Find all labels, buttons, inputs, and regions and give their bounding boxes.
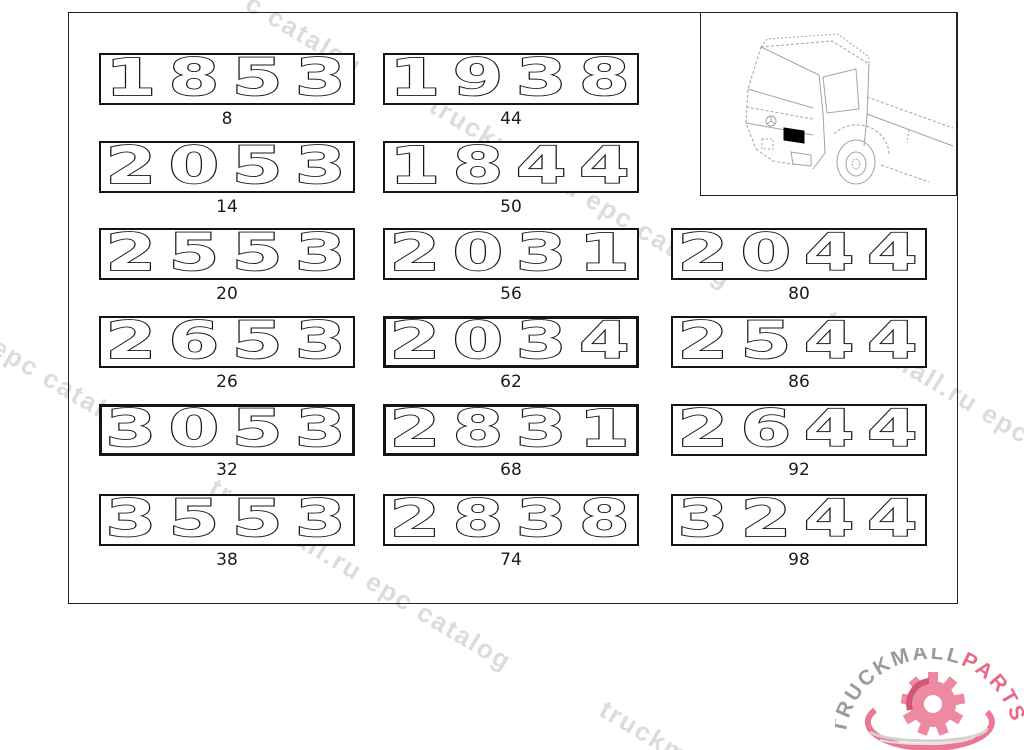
badge-2644[interactable]: 2644 — [671, 404, 927, 456]
badge-1938[interactable]: 1938 — [383, 53, 639, 105]
ref-number-32: 32 — [99, 460, 355, 480]
badge-digits-2831: 2831 — [389, 406, 639, 454]
badge-1853[interactable]: 1853 — [99, 53, 355, 105]
badge-digits-2553: 2553 — [105, 230, 355, 278]
badge-digits-3553: 3553 — [105, 496, 355, 544]
ref-number-86: 86 — [671, 372, 927, 392]
badge-2838[interactable]: 2838 — [383, 494, 639, 546]
truck-cab-sketch-icon — [701, 13, 955, 194]
watermark-text-5: truckmall — [594, 694, 724, 750]
badge-digits-2053: 2053 — [105, 143, 355, 191]
ref-number-92: 92 — [671, 460, 927, 480]
ref-number-38: 38 — [99, 550, 355, 570]
parts-diagram-page: c catalogtruckmall.ru epc catalogtruckma… — [0, 0, 1024, 750]
badge-digits-1938: 1938 — [389, 55, 639, 103]
badge-2831[interactable]: 2831 — [383, 404, 639, 456]
badge-digits-2034: 2034 — [389, 318, 639, 366]
badge-2044[interactable]: 2044 — [671, 228, 927, 280]
badge-2553[interactable]: 2553 — [99, 228, 355, 280]
truck-thumbnail-box — [700, 12, 957, 196]
badge-digits-2031: 2031 — [389, 230, 639, 278]
ref-number-62: 62 — [383, 372, 639, 392]
badge-digits-3244: 3244 — [677, 496, 927, 544]
ref-number-26: 26 — [99, 372, 355, 392]
badge-digits-2044: 2044 — [677, 230, 927, 278]
badge-digits-3053: 3053 — [105, 406, 355, 454]
truckmall-parts-logo[interactable]: TRUCKMALLPARTS — [835, 648, 1024, 750]
ref-number-98: 98 — [671, 550, 927, 570]
ref-number-74: 74 — [383, 550, 639, 570]
badge-digits-2838: 2838 — [389, 496, 639, 544]
ref-number-44: 44 — [383, 109, 639, 129]
badge-digits-2544: 2544 — [677, 318, 927, 366]
gear-icon — [901, 672, 966, 736]
ref-number-68: 68 — [383, 460, 639, 480]
badge-digits-1853: 1853 — [105, 55, 355, 103]
badge-digits-1844: 1844 — [389, 143, 639, 191]
badge-2034[interactable]: 2034 — [383, 316, 639, 368]
ref-number-80: 80 — [671, 284, 927, 304]
ref-number-8: 8 — [99, 109, 355, 129]
ref-number-56: 56 — [383, 284, 639, 304]
badge-2544[interactable]: 2544 — [671, 316, 927, 368]
badge-3244[interactable]: 3244 — [671, 494, 927, 546]
badge-2031[interactable]: 2031 — [383, 228, 639, 280]
badge-2053[interactable]: 2053 — [99, 141, 355, 193]
ref-number-50: 50 — [383, 197, 639, 217]
badge-digits-2644: 2644 — [677, 406, 927, 454]
ref-number-14: 14 — [99, 197, 355, 217]
badge-3053[interactable]: 3053 — [99, 404, 355, 456]
badge-1844[interactable]: 1844 — [383, 141, 639, 193]
badge-digits-2653: 2653 — [105, 318, 355, 366]
badge-2653[interactable]: 2653 — [99, 316, 355, 368]
ref-number-20: 20 — [99, 284, 355, 304]
badge-3553[interactable]: 3553 — [99, 494, 355, 546]
